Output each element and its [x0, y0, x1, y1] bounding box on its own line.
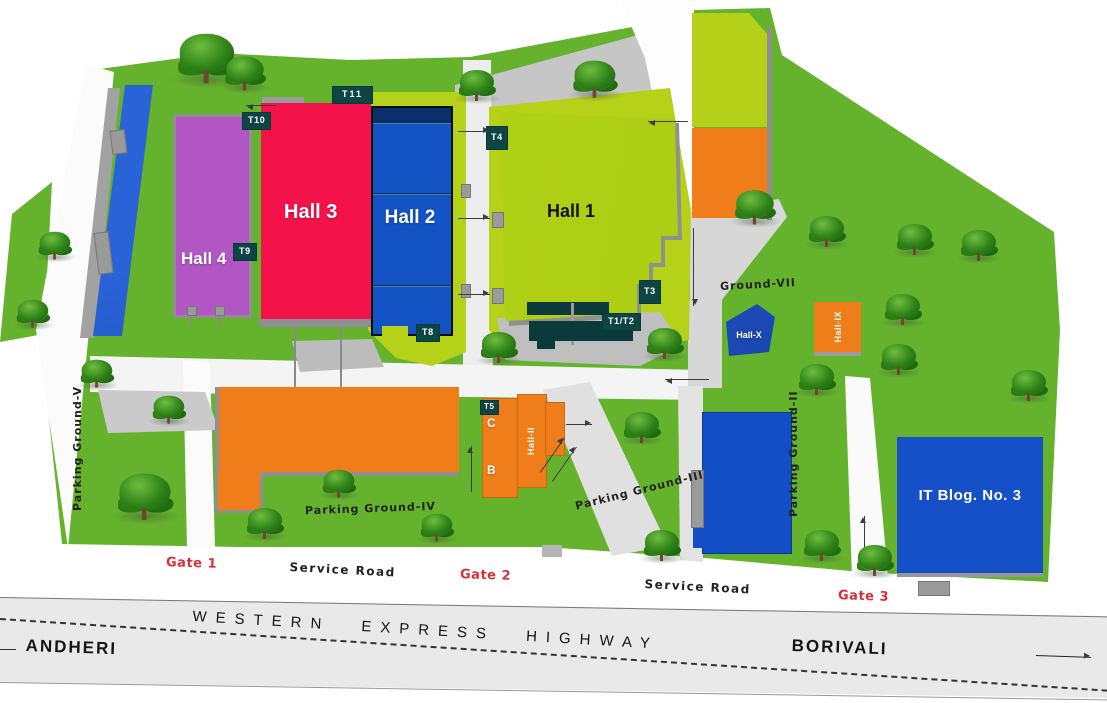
direction-arrow [693, 228, 694, 306]
direction-arrow [648, 121, 688, 122]
hall-ii-label: Hall-II [526, 427, 536, 455]
hall-2-entrance-tab [382, 326, 408, 338]
hall-3-stem [294, 327, 296, 387]
it-building [897, 437, 1043, 577]
destination-east-label: BORIVALI [791, 636, 888, 659]
tree-icon [422, 514, 453, 545]
tag-t9: T9 [233, 243, 257, 261]
tree-icon [800, 364, 834, 398]
dock-arrow [458, 294, 490, 295]
blue-building-foot [693, 528, 710, 548]
pavement-pad [542, 545, 562, 557]
hall-ix-building: Hall-IX [814, 302, 861, 356]
hall-3-stem [340, 327, 342, 387]
tree-icon [805, 530, 839, 564]
tree-icon [460, 70, 494, 104]
hall-x-label: Hall-X [728, 330, 770, 340]
hall-4-label: Hall 4 [181, 249, 226, 269]
gate-1-label: Gate 1 [166, 555, 218, 572]
hall-1-dock [492, 212, 504, 228]
hall-4-building [173, 114, 252, 318]
tree-icon [1012, 370, 1046, 404]
tag-t3: T3 [639, 280, 661, 304]
tag-t5: T5 [480, 400, 499, 415]
gate-2-label: Gate 2 [460, 567, 512, 584]
tree-icon [898, 224, 932, 258]
parking-ground-ii-label: Parking Ground-II [787, 390, 800, 517]
tree-icon [40, 232, 71, 263]
it-building-label: IT Blog. No. 3 [897, 487, 1043, 504]
service-road-east-label: Service Road [644, 577, 751, 597]
tag-t1-t2: T1/T2 [602, 313, 641, 331]
tree-icon [858, 545, 892, 579]
hall-4-post [187, 306, 197, 316]
tree-icon [962, 230, 996, 264]
hall-ix-label: Hall-IX [833, 311, 843, 343]
tree-icon [736, 190, 773, 227]
gate-3-label: Gate 3 [838, 588, 890, 605]
orange-warehouse-annex [215, 472, 263, 513]
hall-ii-label-wrap: Hall-II [517, 404, 545, 478]
dock-arrow [458, 218, 490, 219]
direction-arrow [566, 424, 592, 425]
hall-3-base [259, 319, 373, 327]
tree-icon [886, 294, 920, 328]
tree-icon [248, 508, 282, 542]
it-building-pad [918, 581, 950, 596]
tag-t10: T10 [242, 112, 271, 130]
hall-2-divider [373, 122, 451, 125]
hall-1-canopy [527, 302, 609, 315]
tree-icon [482, 332, 516, 366]
tree-icon [120, 474, 171, 525]
tree-icon [324, 470, 355, 501]
hall-1-label: Hall 1 [547, 201, 595, 222]
tree-icon [648, 328, 682, 362]
tree-icon [154, 396, 185, 427]
hall-1-canopy-foot [537, 341, 555, 349]
direction-arrow [246, 105, 276, 106]
hall-2-label: Hall 2 [371, 207, 449, 229]
destination-west-label: ANDHERI [25, 636, 117, 659]
block-c-label: C [487, 416, 496, 430]
tree-icon [645, 530, 679, 564]
tag-t8: T8 [416, 324, 440, 342]
hall-2-divider [373, 285, 451, 288]
hall-2-divider [373, 193, 451, 196]
site-map: Hall-IX Hall 3 Hall 2 Hall 4 Hall 1 Hall… [0, 0, 1107, 703]
direction-arrow [665, 379, 709, 380]
hall-4-post [215, 306, 225, 316]
parking-ground-v-label: Parking Ground-V [71, 386, 84, 511]
direction-arrow [471, 446, 472, 492]
tree-icon [625, 412, 659, 446]
tree-icon [226, 56, 263, 93]
tree-icon [810, 216, 844, 250]
hall-1-dock [492, 288, 504, 304]
tag-t11: T11 [332, 86, 373, 104]
orange-warehouse-building [215, 387, 459, 476]
ground-marker [461, 184, 471, 198]
destination-west-dash [0, 649, 16, 650]
warehouse-pad [110, 129, 128, 155]
ground-marker [461, 284, 471, 298]
block-b-label: B [487, 463, 496, 477]
hall-3-label: Hall 3 [284, 201, 337, 224]
hall-ii-extension [545, 402, 565, 456]
tree-icon [575, 61, 616, 102]
tag-t4: T4 [486, 126, 508, 150]
service-road-west-label: Service Road [289, 560, 396, 580]
tree-icon [18, 300, 49, 331]
blue-building [702, 412, 792, 554]
tree-icon [882, 344, 916, 378]
tree-icon [82, 360, 113, 391]
